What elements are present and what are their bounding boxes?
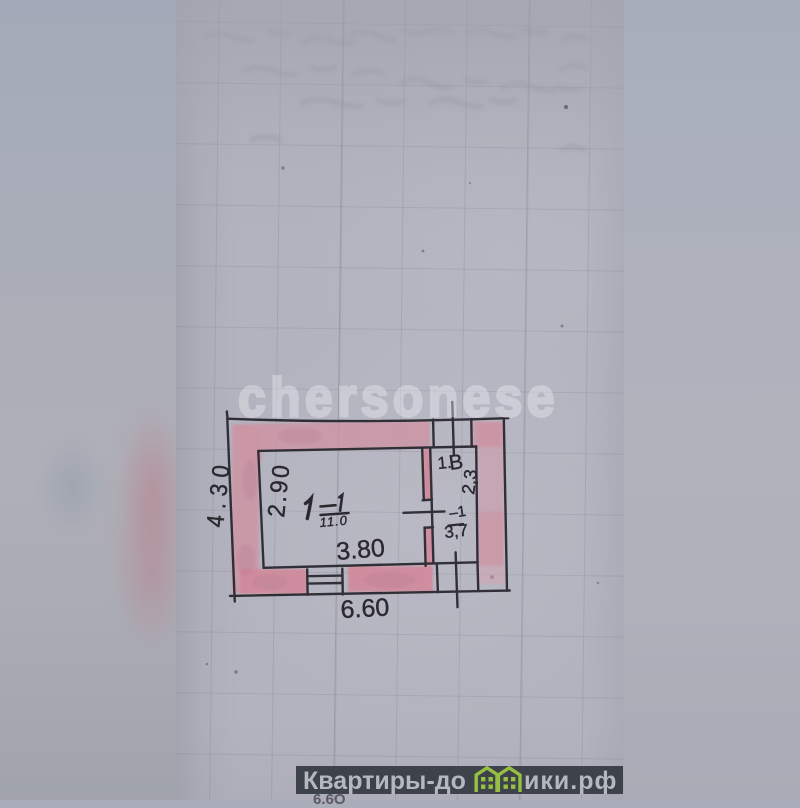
svg-text:3.80: 3.80 [335,534,386,566]
svg-text:3,7: 3,7 [443,521,468,542]
svg-text:chersonese: chersonese [238,367,559,429]
svg-text:–1: –1 [448,503,467,522]
svg-text:2.90: 2.90 [263,461,295,518]
svg-text:2,3: 2,3 [458,468,481,495]
svg-text:6.60: 6.60 [340,593,390,624]
svg-text:11.0: 11.0 [319,513,349,530]
